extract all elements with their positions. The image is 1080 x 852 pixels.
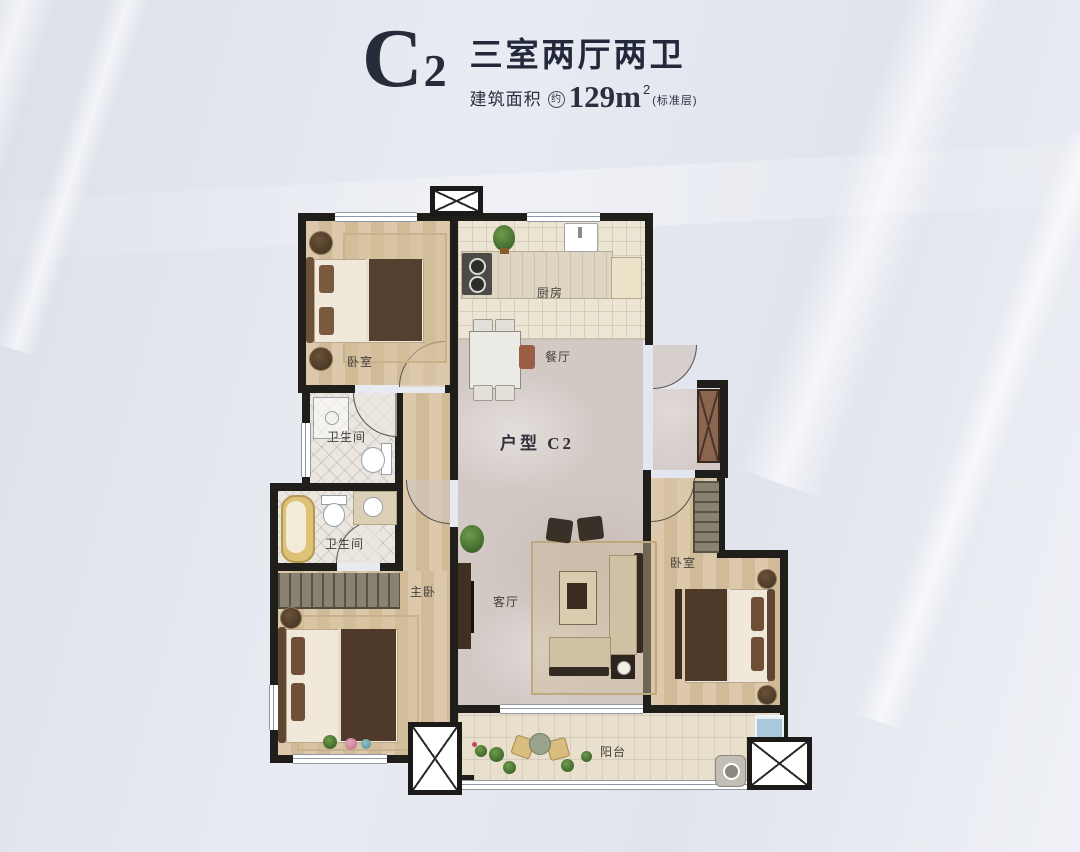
wall bbox=[780, 550, 788, 713]
dining-chair bbox=[495, 385, 515, 401]
room-label-kitchen: 厨房 bbox=[537, 284, 563, 301]
title-column: 三室两厅两卫 建筑面积 约 129m 2 (标准层) bbox=[470, 14, 698, 111]
flower bbox=[361, 739, 371, 749]
pillow bbox=[319, 265, 334, 293]
wall bbox=[380, 563, 403, 571]
bed-headboard bbox=[767, 589, 775, 681]
floor-plan: 卧室 厨房 餐厅 卫生间 卫生间 主卧 客厅 卧室 阳台 户型 C2 bbox=[265, 185, 825, 805]
plant bbox=[323, 735, 337, 749]
plant-pot bbox=[500, 248, 509, 254]
title-block: C2 三室两厅两卫 建筑面积 约 129m 2 (标准层) bbox=[362, 14, 698, 116]
bed-bench bbox=[675, 589, 682, 679]
door-arc-entrance bbox=[653, 345, 697, 389]
background-streak bbox=[0, 0, 164, 356]
bed-headboard bbox=[306, 257, 314, 343]
coffee-table-tray bbox=[567, 583, 587, 609]
wardrobe bbox=[693, 481, 719, 553]
flower bbox=[345, 738, 357, 750]
bed-blanket bbox=[685, 589, 727, 681]
unit-center-label: 户型 C2 bbox=[500, 429, 574, 454]
unit-code: C2 bbox=[362, 14, 448, 116]
plant bbox=[475, 745, 487, 757]
wall bbox=[643, 705, 788, 713]
plant bbox=[489, 747, 504, 762]
fridge bbox=[611, 257, 642, 299]
sink bbox=[363, 497, 383, 517]
tv bbox=[471, 581, 474, 633]
bed-sheet-fold bbox=[727, 589, 730, 681]
wall bbox=[298, 213, 306, 390]
wall bbox=[720, 380, 728, 478]
bathtub-basin bbox=[286, 501, 306, 553]
dining-chair bbox=[473, 385, 493, 401]
room-label-bath-upper: 卫生间 bbox=[327, 428, 366, 445]
room-label-bath-lower: 卫生间 bbox=[325, 535, 364, 552]
plant bbox=[460, 525, 484, 553]
room-label-bedroom-north: 卧室 bbox=[347, 353, 373, 370]
bed-blanket bbox=[369, 259, 422, 341]
balcony-table bbox=[529, 733, 551, 755]
room-label-master: 主卧 bbox=[410, 583, 436, 600]
wall bbox=[270, 563, 337, 571]
floor-note: (标准层) bbox=[652, 92, 697, 108]
flower bbox=[472, 742, 477, 747]
window bbox=[527, 212, 600, 222]
pillow bbox=[291, 683, 305, 721]
area-line: 建筑面积 约 129m 2 (标准层) bbox=[470, 82, 698, 111]
background-streak bbox=[855, 130, 1080, 730]
nightstand bbox=[309, 231, 333, 255]
wall bbox=[458, 705, 500, 713]
wall bbox=[643, 470, 651, 478]
background-streak bbox=[0, 0, 66, 459]
lamp bbox=[617, 661, 631, 675]
sofa-back bbox=[549, 667, 609, 676]
plant bbox=[581, 751, 592, 762]
window bbox=[335, 212, 417, 222]
armchair bbox=[577, 516, 605, 542]
bed-blanket bbox=[341, 629, 396, 741]
room-label-balcony: 阳台 bbox=[600, 743, 626, 760]
wall bbox=[270, 483, 403, 491]
wall bbox=[695, 470, 728, 478]
pillow bbox=[751, 597, 764, 631]
pillow bbox=[319, 307, 334, 335]
sofa bbox=[609, 555, 637, 655]
wall bbox=[450, 213, 458, 480]
wall bbox=[717, 550, 788, 558]
wall bbox=[645, 213, 653, 345]
entry-door-leaf bbox=[697, 389, 720, 463]
window bbox=[293, 754, 387, 764]
pillow bbox=[751, 637, 764, 671]
bed-sheet-fold bbox=[366, 259, 369, 341]
shower-drain-icon bbox=[325, 411, 339, 425]
tv-cabinet bbox=[458, 563, 471, 649]
plant bbox=[503, 761, 516, 774]
wardrobe bbox=[278, 573, 400, 609]
faucet-icon bbox=[578, 227, 582, 238]
elevator-shaft-icon bbox=[747, 737, 812, 790]
nightstand bbox=[280, 607, 302, 629]
elevator-shaft-icon bbox=[430, 186, 483, 216]
nightstand bbox=[309, 347, 333, 371]
nightstand bbox=[757, 569, 777, 589]
stove-burner bbox=[469, 258, 486, 275]
dining-table bbox=[469, 331, 521, 389]
washing-machine-door bbox=[723, 763, 740, 780]
area-label: 建筑面积 bbox=[470, 89, 542, 111]
window bbox=[301, 423, 311, 477]
area-approx-circled: 约 bbox=[548, 91, 565, 108]
elevator-shaft-icon bbox=[408, 722, 462, 795]
dining-chair bbox=[519, 345, 535, 369]
armchair bbox=[546, 517, 574, 543]
area-value: 129m bbox=[569, 83, 641, 111]
room-label-dining: 餐厅 bbox=[545, 348, 571, 365]
balcony-sliding-door bbox=[500, 704, 643, 714]
sofa bbox=[549, 637, 611, 669]
pillow bbox=[291, 637, 305, 675]
plant bbox=[561, 759, 574, 772]
bed-sheet-fold bbox=[338, 629, 341, 741]
room-label-bedroom-east: 卧室 bbox=[670, 554, 696, 571]
nightstand bbox=[757, 685, 777, 705]
room-label-living: 客厅 bbox=[493, 593, 519, 610]
toilet bbox=[361, 447, 385, 473]
toilet bbox=[323, 503, 345, 527]
layout-title: 三室两厅两卫 bbox=[470, 28, 698, 76]
bed-headboard bbox=[278, 627, 286, 743]
area-superscript: 2 bbox=[643, 82, 650, 97]
stove-burner bbox=[469, 276, 486, 293]
